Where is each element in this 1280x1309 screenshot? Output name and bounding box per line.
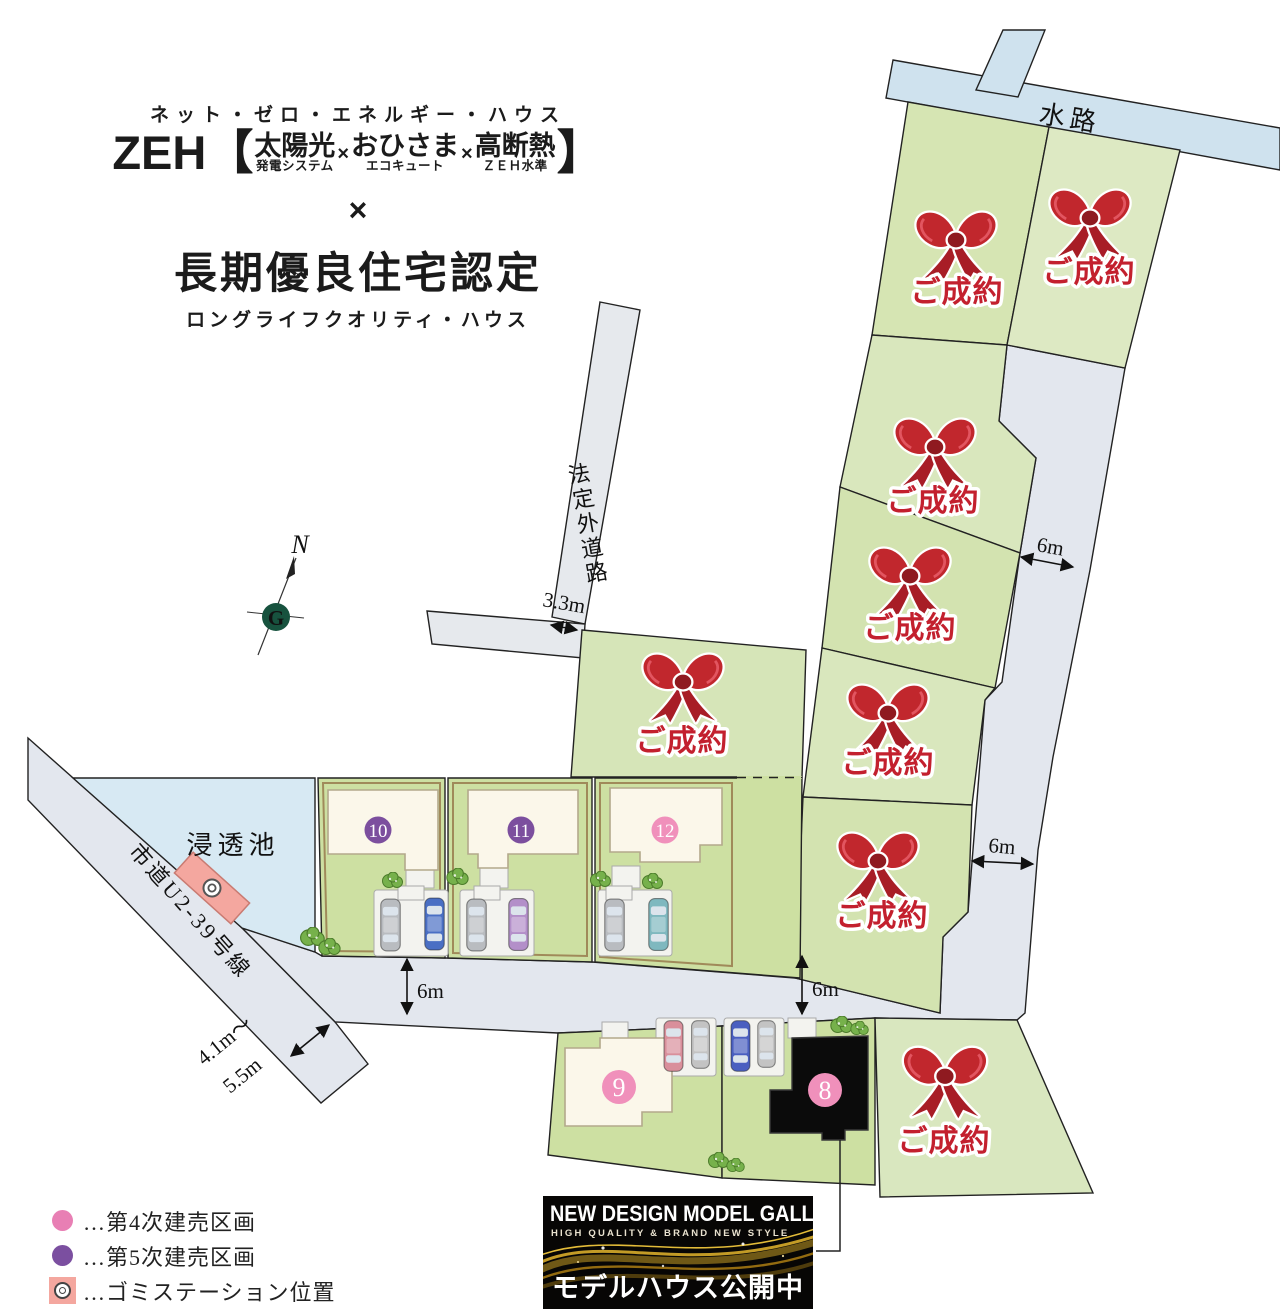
legend-label: …第5次建売区画 [83,1240,256,1272]
car-pink [664,1021,683,1072]
banner-title: NEW DESIGN MODEL GALLERY [550,1201,813,1227]
cross-icon: × [337,143,349,166]
phase4-dot-icon [52,1210,73,1231]
legend-row-phase5: …第5次建売区画 [40,1238,336,1273]
car-gray [605,899,624,951]
sold-label: ご成約 [887,484,980,518]
header-kana: ネット・ゼロ・エネルギー・ハウス [78,100,638,127]
zeh-item-main: おひさま [351,132,459,160]
dim-6m: 6m [417,979,444,1003]
sold-label: ご成約 [898,1124,991,1158]
sold-label: ご成約 [836,899,929,933]
sold-label: ご成約 [636,724,729,758]
zeh-item-sub: 発電システム [254,160,335,173]
zeh-item-main: 高断熱 [475,132,556,160]
lot9-number: 9 [613,1073,626,1102]
dim-6m: 6m [988,833,1017,859]
car-gray [381,899,400,951]
lot-sold-bottom-right [875,1018,1093,1197]
flyer-canvas: ご成約 ご成約 ご成約 ご成約 ご成約 ご成約 ご成約 ご成約 10 11 12… [0,0,1280,1309]
zeh-item-insulation: 高断熱 ＺＥＨ水準 [475,132,556,173]
dim-6m: 6m [812,977,839,1001]
car-gray [692,1021,710,1069]
middle-cross-icon: × [78,192,638,229]
zeh-text: ZEH [112,129,206,176]
lot12-number: 12 [656,821,675,842]
header: ネット・ゼロ・エネルギー・ハウス ZEH 【 太陽光 発電システム × おひさま… [78,100,638,332]
dim-5-5m: 5.5m [218,1052,266,1097]
garbage-station-icon [49,1277,76,1304]
car-blue [731,1021,750,1072]
legend: …第4次建売区画 …第5次建売区画 …ゴミステーション位置 [40,1203,336,1308]
cert-title: 長期優良住宅認定 [78,239,638,301]
banner-cta: モデルハウス公開中 [543,1266,813,1305]
sold-label: ご成約 [864,611,957,645]
car-blue [425,898,444,950]
model-house-banner: NEW DESIGN MODEL GALLERY HIGH QUALITY & … [543,1196,813,1309]
car-purple [509,899,528,951]
sold-label: ご成約 [842,746,935,780]
zeh-item-solar: 太陽光 発電システム [254,132,335,173]
bracket-open: 【 [206,129,253,176]
zeh-line: ZEH 【 太陽光 発電システム × おひさま エコキュート × 高断熱 ＺＥＨ… [78,129,638,176]
banner-subtitle: HIGH QUALITY & BRAND NEW STYLE [551,1228,789,1239]
pond-label: 浸透池 [186,831,279,860]
legend-row-phase4: …第4次建売区画 [40,1203,336,1238]
sold-label: ご成約 [1043,255,1136,289]
lot8-number: 8 [819,1076,832,1105]
compass-north: N [290,530,310,559]
car-teal [649,899,668,951]
legend-row-garbage: …ゴミステーション位置 [40,1273,336,1308]
compass-logo-letter: G [268,606,284,630]
legend-label: …ゴミステーション位置 [83,1275,336,1307]
dim-6m: 6m [1035,532,1066,560]
zeh-item-sub: エコキュート [351,160,459,173]
zeh-item-sub: ＺＥＨ水準 [475,160,556,173]
car-gray [758,1021,775,1068]
phase5-dot-icon [52,1245,73,1266]
car-gray [467,899,486,951]
lot10-number: 10 [369,821,388,842]
bracket-close: 】 [557,129,604,176]
zeh-item-main: 太陽光 [254,132,335,160]
lot11-number: 11 [512,821,530,842]
cert-kana: ロングライフクオリティ・ハウス [78,305,638,332]
legend-label: …第4次建売区画 [83,1205,256,1237]
zeh-item-ohisama: おひさま エコキュート [351,132,459,173]
cross-icon: × [461,143,473,166]
sold-label: ご成約 [911,275,1004,309]
compass: G N [247,530,310,655]
